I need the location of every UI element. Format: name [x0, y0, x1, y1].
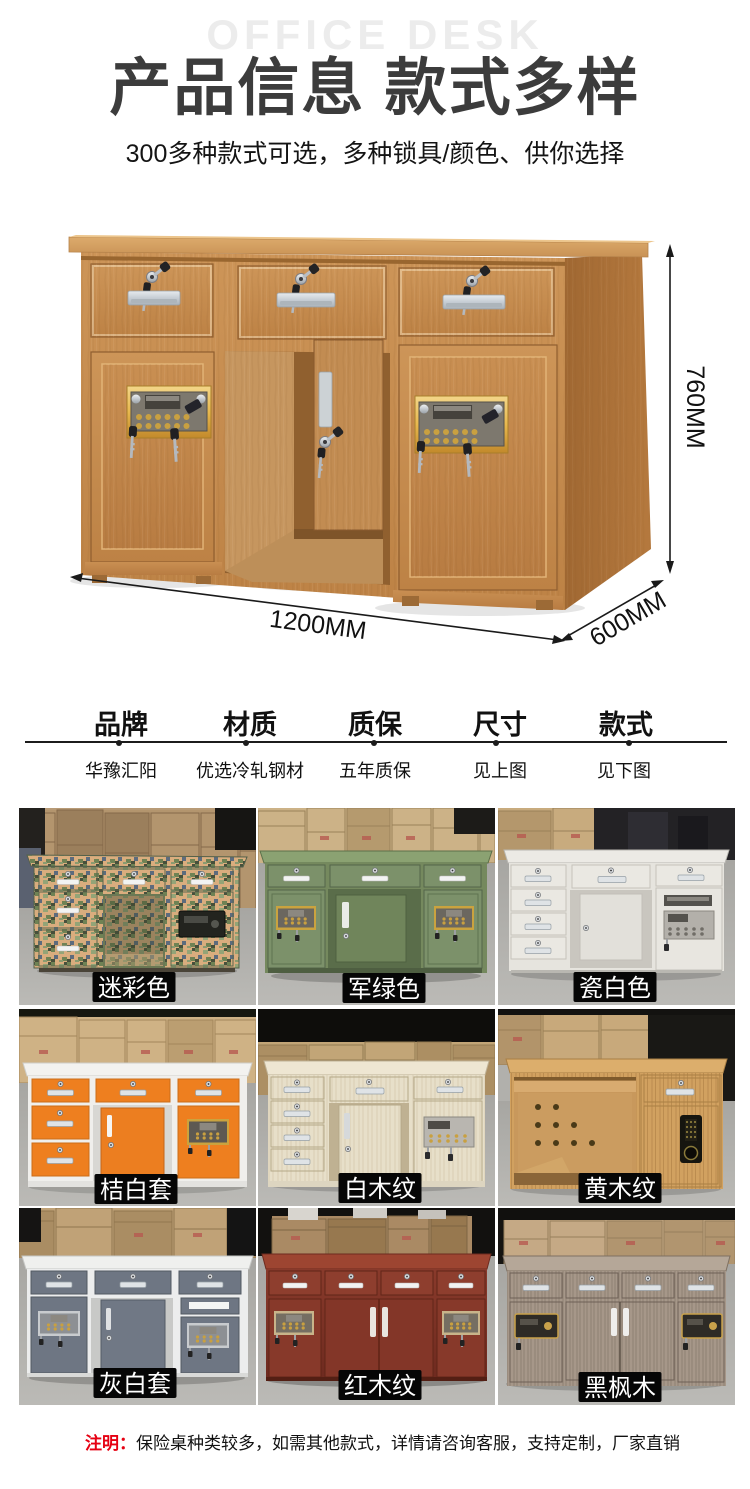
svg-text:黄木纹: 黄木纹: [584, 1176, 656, 1203]
svg-text:红木纹: 红木纹: [344, 1373, 416, 1400]
svg-text:白木纹: 白木纹: [344, 1176, 416, 1203]
svg-text:1200MM: 1200MM: [268, 605, 368, 645]
svg-text:迷彩色: 迷彩色: [98, 975, 170, 1002]
svg-text:760MM: 760MM: [681, 365, 709, 448]
svg-text:瓷白色: 瓷白色: [579, 975, 651, 1002]
svg-text:桔白套: 桔白套: [100, 1177, 172, 1204]
svg-text:军绿色: 军绿色: [348, 976, 420, 1003]
svg-text:灰白套: 灰白套: [99, 1371, 171, 1398]
svg-text:黑枫木: 黑枫木: [584, 1375, 656, 1402]
